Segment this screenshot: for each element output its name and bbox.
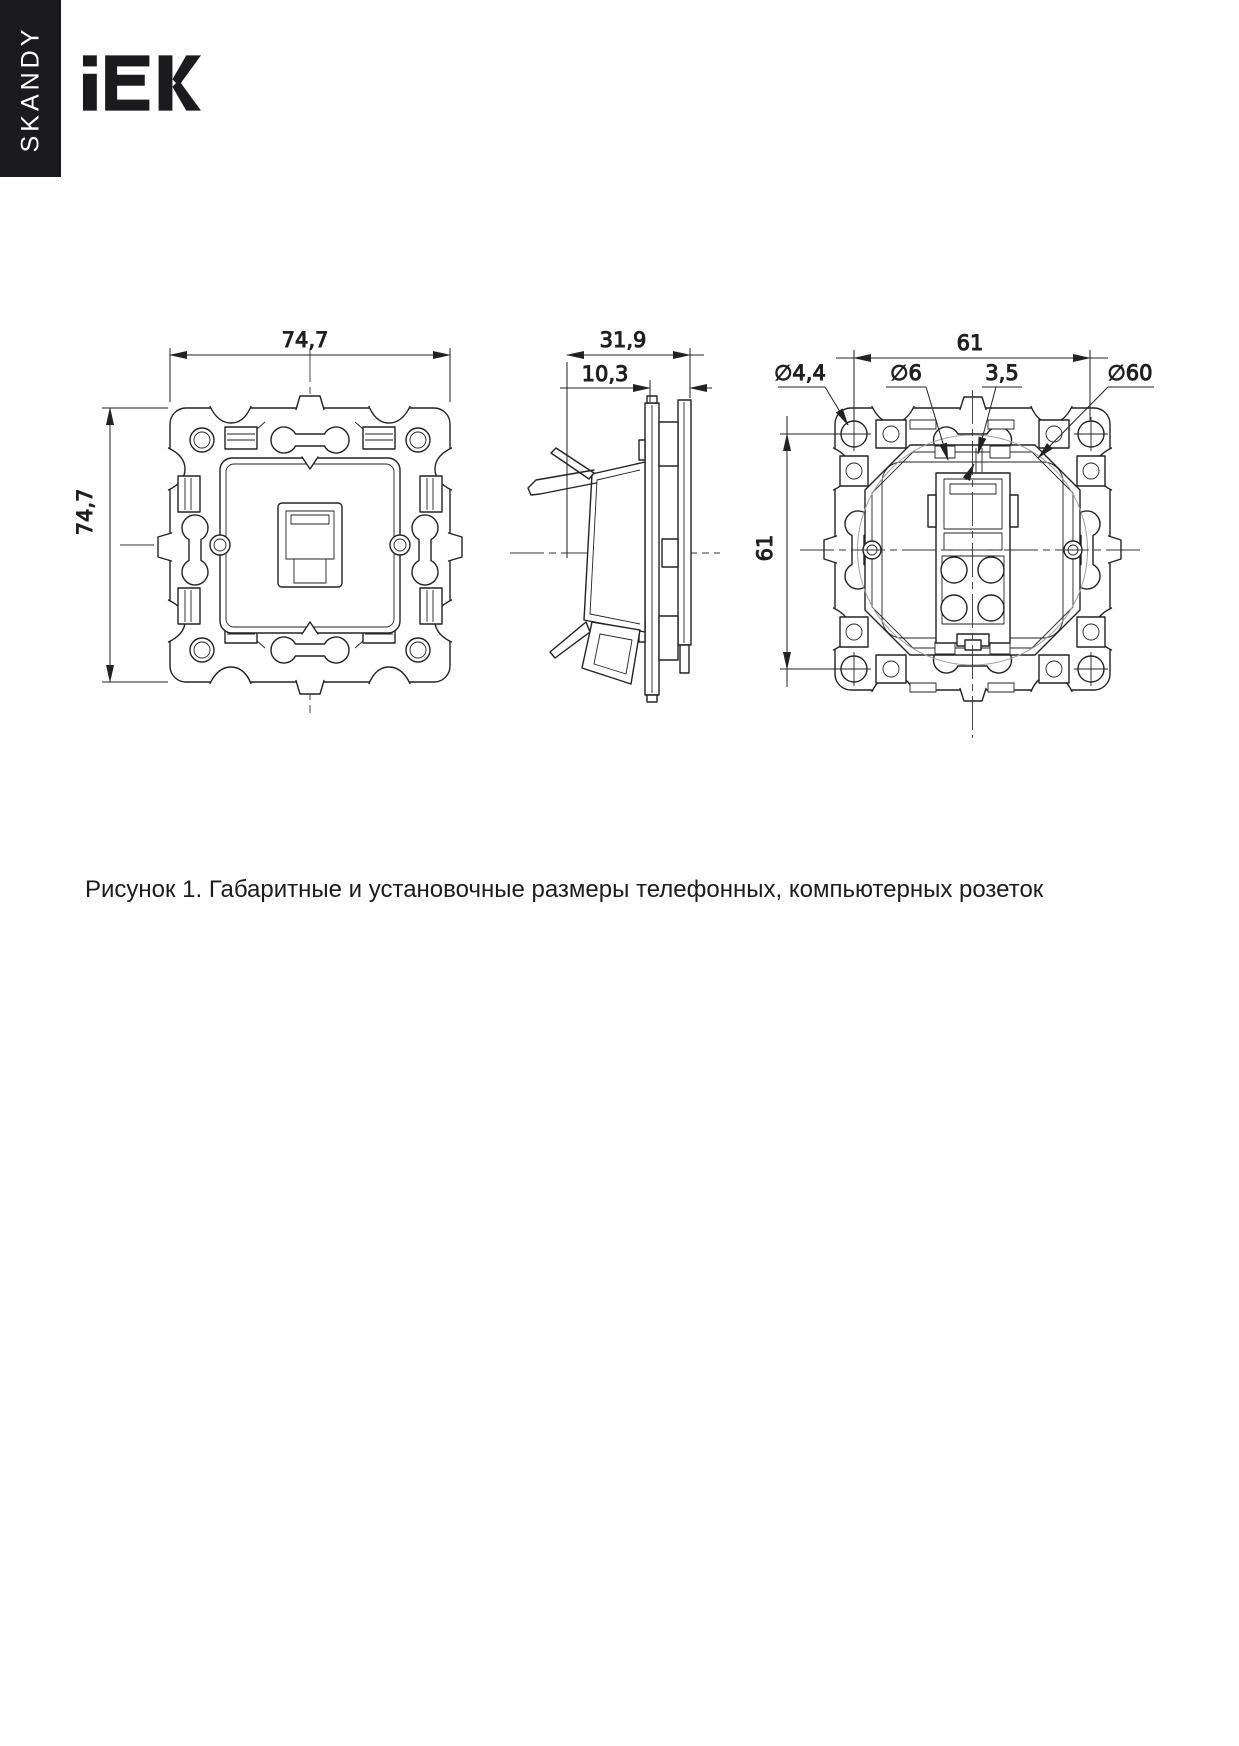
dim-back-slot-hole: ∅6 bbox=[890, 361, 922, 385]
dim-side-depth: 31,9 bbox=[600, 328, 647, 352]
iek-logo bbox=[83, 55, 201, 111]
side-view-drawing: 31,9 10,3 bbox=[490, 290, 730, 730]
manual-page: SKANDY bbox=[0, 0, 1239, 1746]
dim-back-slot-width: 3,5 bbox=[985, 361, 1018, 385]
dim-back-span-h: 61 bbox=[957, 331, 984, 355]
back-view-drawing: 61 61 ∅4,4 ∅6 3,5 ∅60 bbox=[730, 290, 1190, 750]
dim-side-protrusion: 10,3 bbox=[582, 362, 629, 386]
figure-caption: Рисунок 1. Габаритные и установочные раз… bbox=[85, 876, 1043, 904]
dim-front-height: 74,7 bbox=[73, 489, 97, 536]
iek-logo-graphic bbox=[83, 55, 201, 111]
front-view-drawing: 74,7 74,7 bbox=[60, 290, 470, 730]
dim-back-span-v: 61 bbox=[753, 535, 777, 562]
back-rj45-module bbox=[928, 448, 1018, 650]
front-rj45-jack bbox=[278, 503, 342, 587]
series-banner: SKANDY bbox=[0, 0, 61, 177]
side-profile bbox=[528, 396, 691, 702]
front-mounting-frame bbox=[158, 396, 462, 694]
dim-back-mount-dia: ∅60 bbox=[1107, 361, 1152, 385]
series-label: SKANDY bbox=[16, 25, 45, 152]
dim-back-screw-hole: ∅4,4 bbox=[774, 361, 826, 385]
dim-front-width: 74,7 bbox=[282, 328, 329, 352]
